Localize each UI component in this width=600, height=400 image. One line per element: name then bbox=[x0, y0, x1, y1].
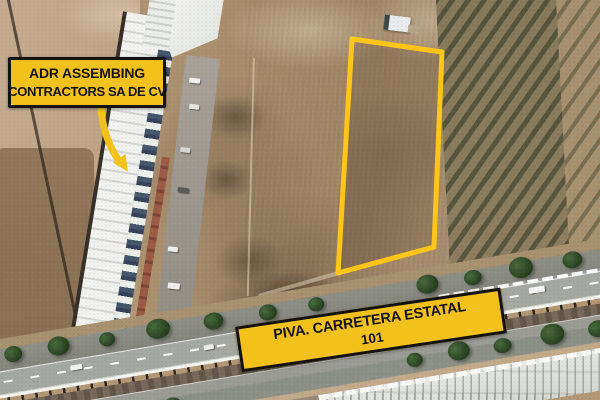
small-shack bbox=[383, 14, 411, 32]
satellite-map: ADR ASSEMBING CONTRACTORS SA DE CV PIVA.… bbox=[0, 0, 600, 400]
company-callout-line2: CONTRACTORS SA DE CV bbox=[8, 83, 165, 101]
company-callout-line1: ADR ASSEMBING bbox=[29, 64, 145, 84]
car bbox=[180, 147, 191, 153]
car bbox=[167, 282, 180, 289]
car bbox=[189, 104, 200, 110]
orchard-rows bbox=[436, 0, 600, 278]
car bbox=[177, 187, 188, 193]
company-callout: ADR ASSEMBING CONTRACTORS SA DE CV bbox=[8, 57, 166, 108]
car bbox=[168, 246, 179, 252]
road-sign-number: 101 bbox=[360, 329, 385, 348]
car bbox=[189, 78, 200, 84]
field-dark-patch bbox=[200, 160, 254, 200]
small-shack bbox=[408, 24, 420, 33]
